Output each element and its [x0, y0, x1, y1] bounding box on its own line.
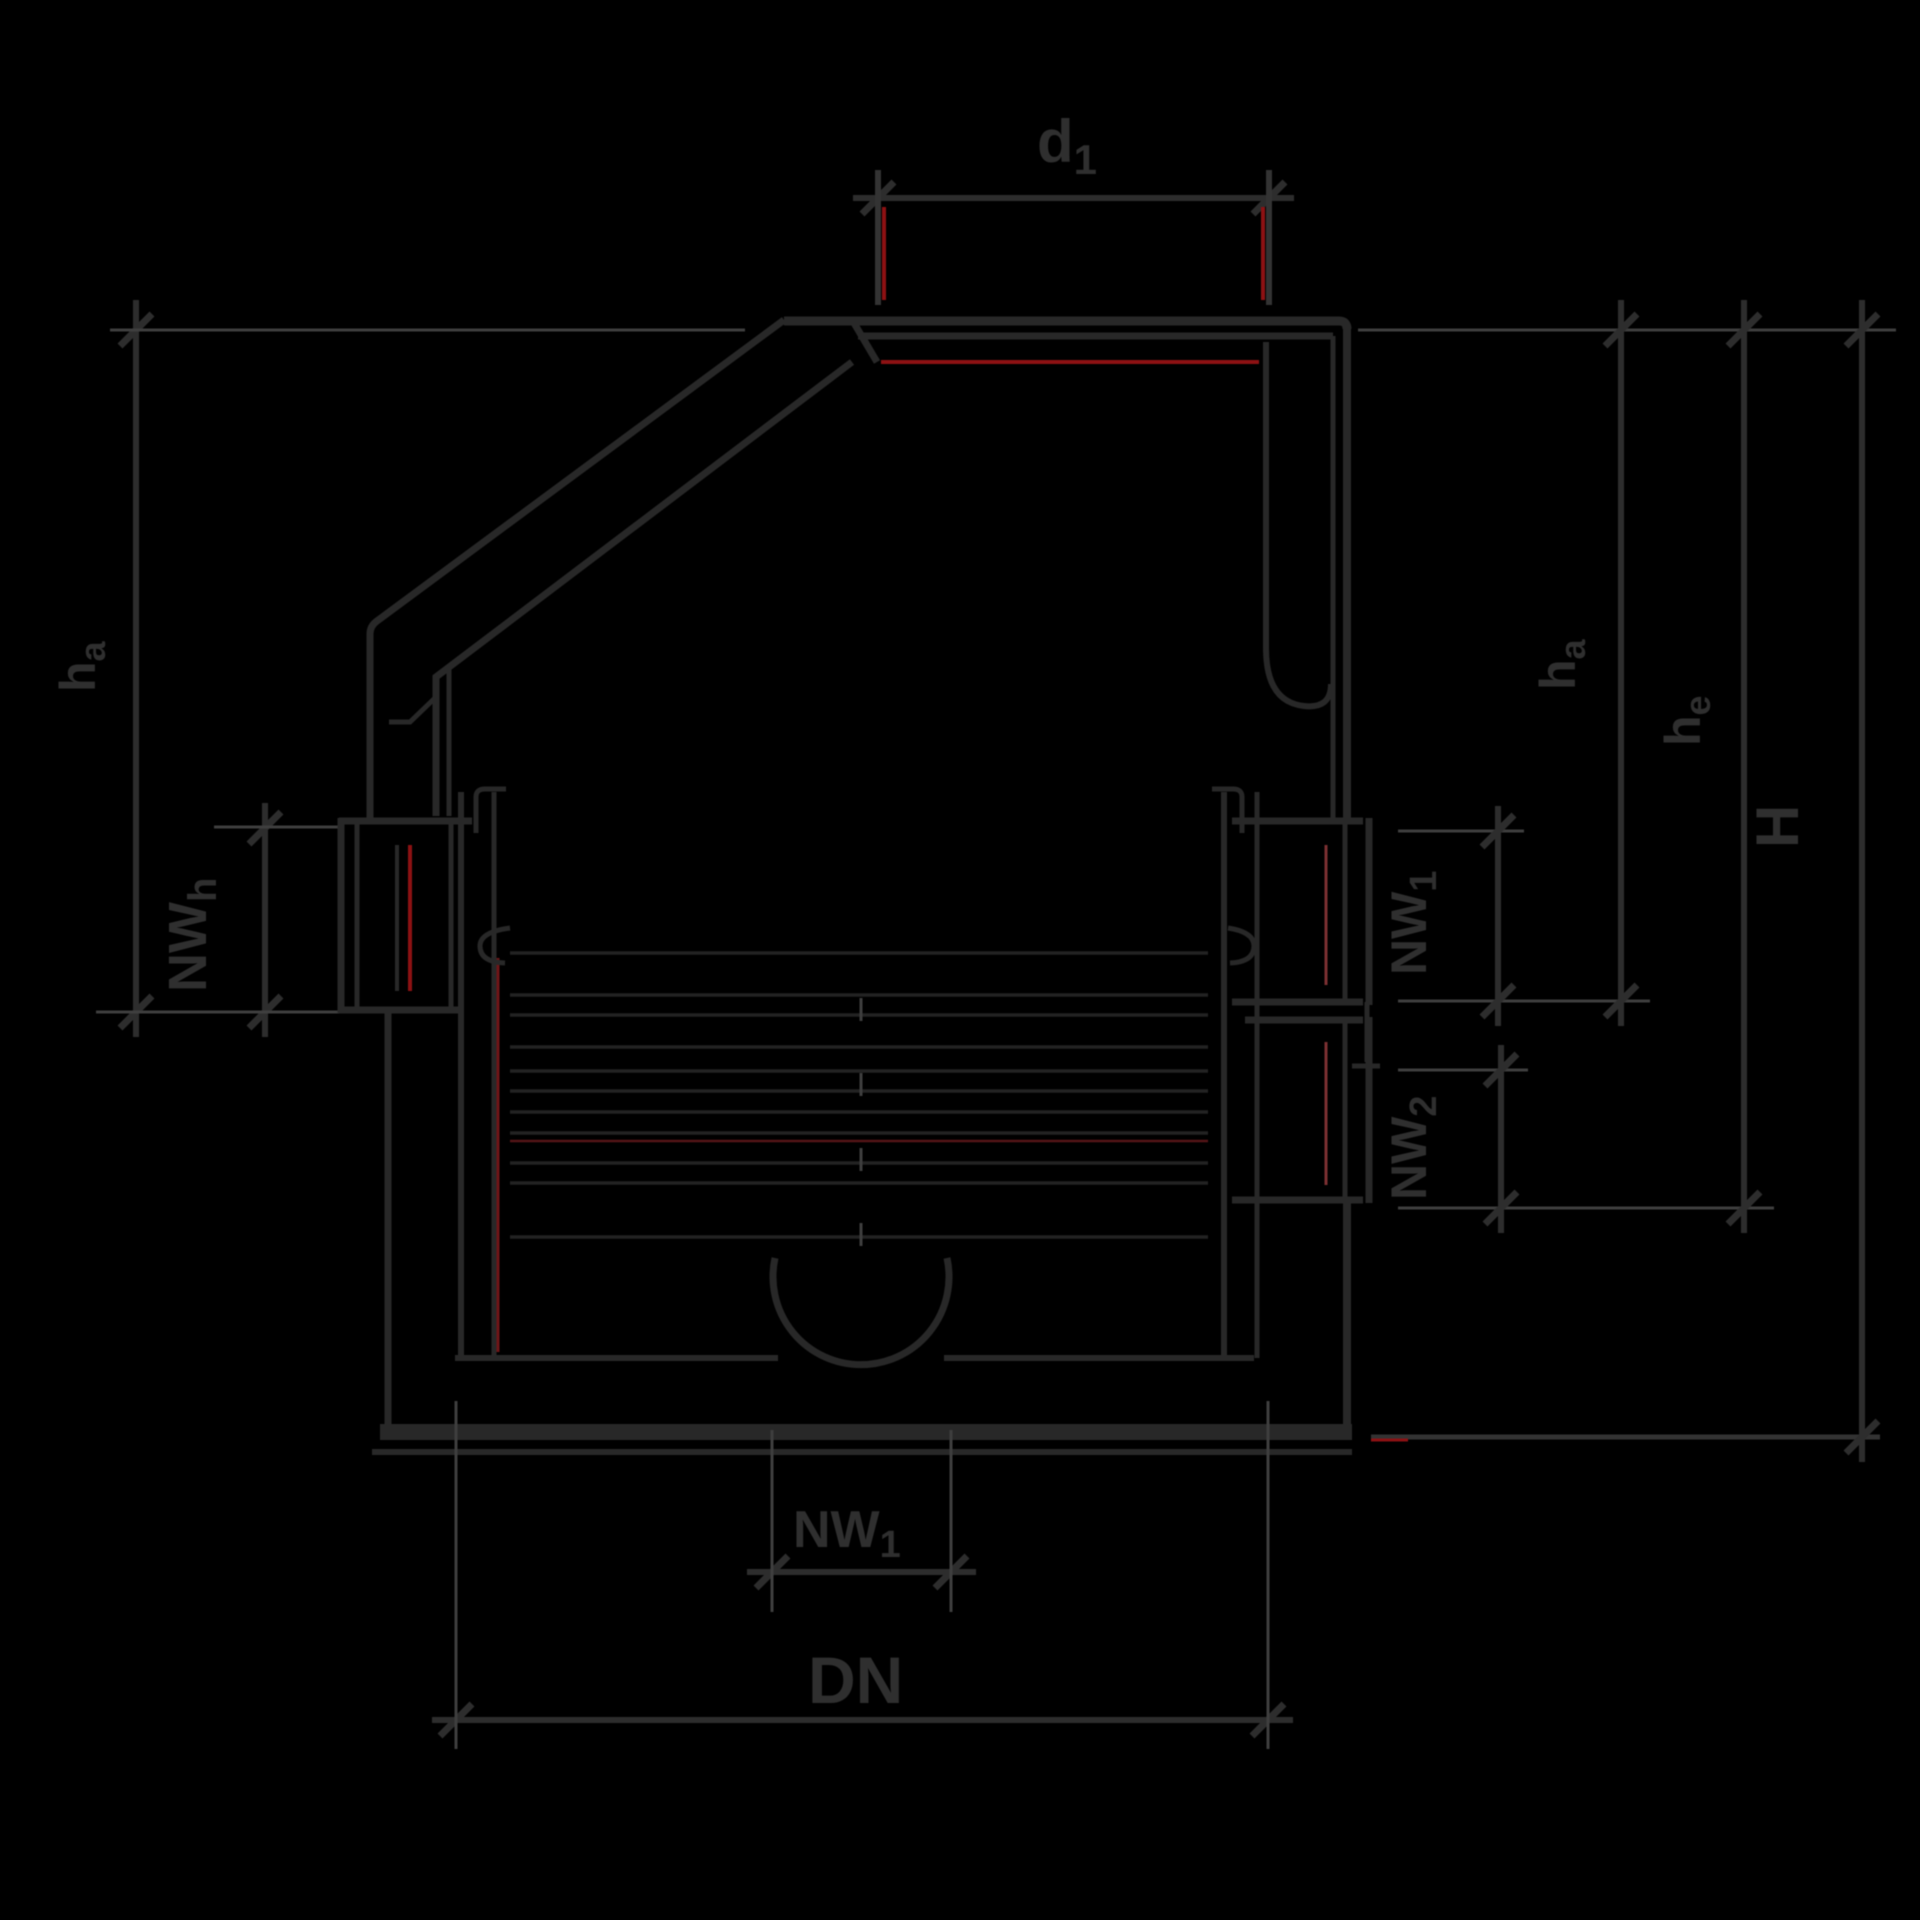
svg-text:H: H — [1744, 805, 1811, 848]
svg-text:DN: DN — [808, 1643, 903, 1717]
